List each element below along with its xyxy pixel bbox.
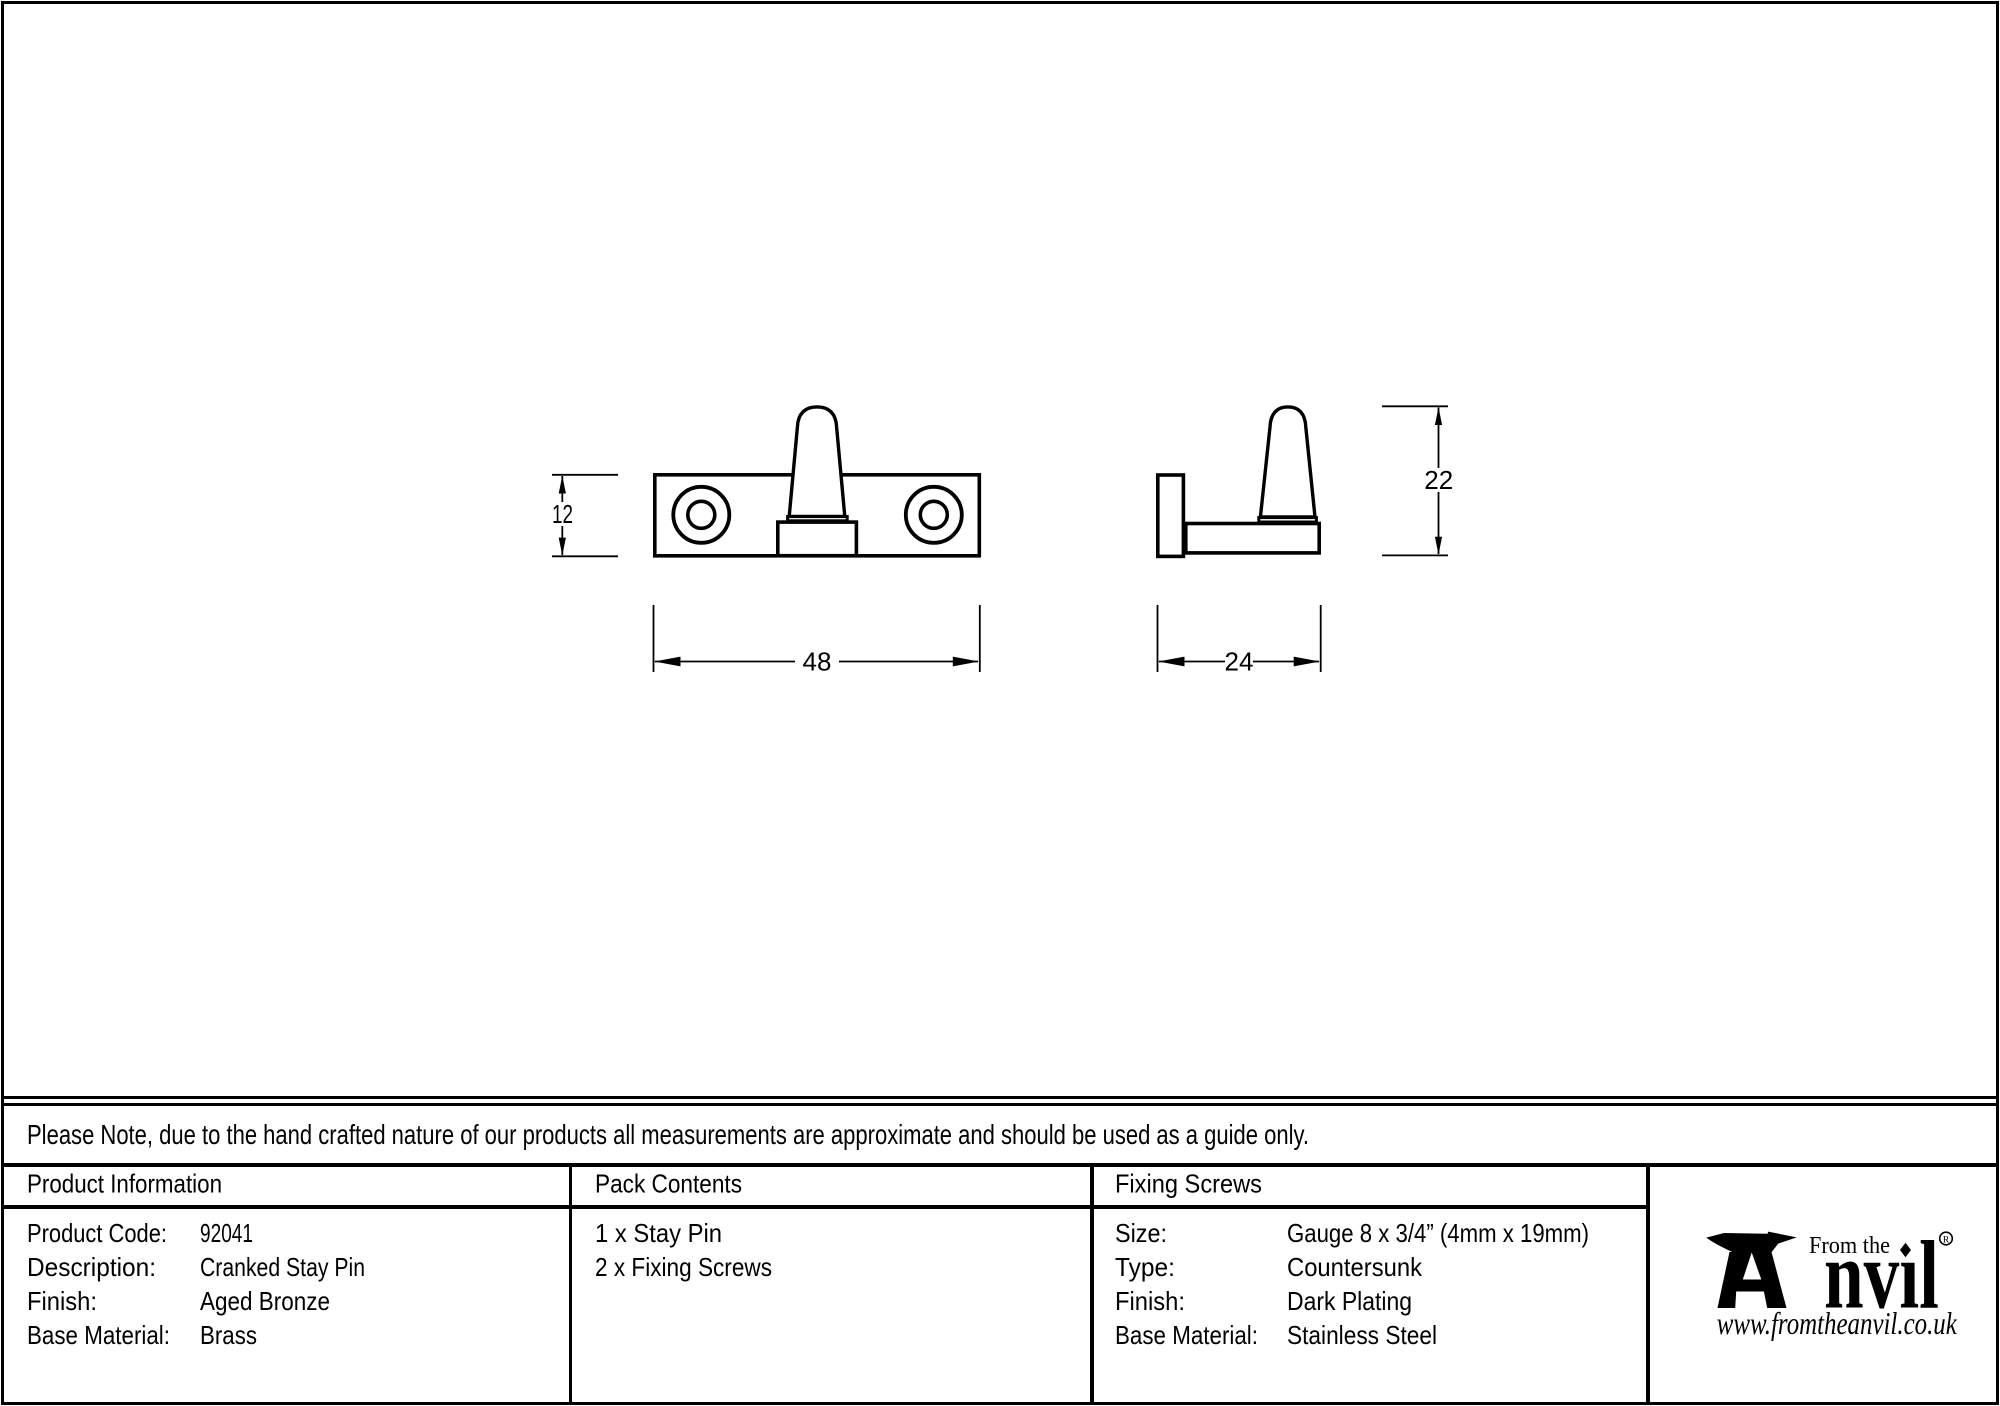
svg-text:Please Note, due to the hand c: Please Note, due to the hand crafted nat… [27, 1119, 1309, 1150]
svg-text:Countersunk: Countersunk [1287, 1252, 1423, 1282]
svg-text:Type:: Type: [1115, 1252, 1175, 1282]
svg-text:Aged Bronze: Aged Bronze [200, 1286, 330, 1316]
svg-text:Gauge 8 x 3/4” (4mm x 19mm): Gauge 8 x 3/4” (4mm x 19mm) [1287, 1218, 1589, 1248]
svg-text:Finish:: Finish: [1115, 1286, 1185, 1316]
svg-text:Product Code:: Product Code: [27, 1218, 167, 1248]
svg-text:Brass: Brass [200, 1320, 257, 1350]
svg-text:92041: 92041 [200, 1218, 253, 1248]
svg-text:Cranked Stay Pin: Cranked Stay Pin [200, 1252, 365, 1282]
svg-text:Base Material:: Base Material: [1115, 1320, 1258, 1350]
svg-text:R: R [1943, 1235, 1950, 1245]
svg-text:Dark Plating: Dark Plating [1287, 1286, 1412, 1316]
svg-text:12: 12 [552, 499, 573, 529]
svg-text:1 x Stay Pin: 1 x Stay Pin [595, 1218, 722, 1248]
svg-text:Description:: Description: [27, 1252, 156, 1282]
svg-text:2 x Fixing Screws: 2 x Fixing Screws [595, 1252, 772, 1282]
svg-text:Product Information: Product Information [27, 1169, 222, 1199]
svg-text:Base Material:: Base Material: [27, 1320, 170, 1350]
svg-text:48: 48 [803, 647, 832, 677]
svg-text:Finish:: Finish: [27, 1286, 97, 1316]
svg-text:www.fromtheanvil.co.uk: www.fromtheanvil.co.uk [1717, 1305, 1958, 1341]
svg-text:Fixing Screws: Fixing Screws [1115, 1169, 1262, 1199]
svg-text:22: 22 [1424, 465, 1453, 495]
svg-text:Size:: Size: [1115, 1218, 1167, 1248]
svg-text:Pack Contents: Pack Contents [595, 1169, 742, 1199]
svg-text:Stainless Steel: Stainless Steel [1287, 1320, 1437, 1350]
svg-text:24: 24 [1225, 647, 1254, 677]
